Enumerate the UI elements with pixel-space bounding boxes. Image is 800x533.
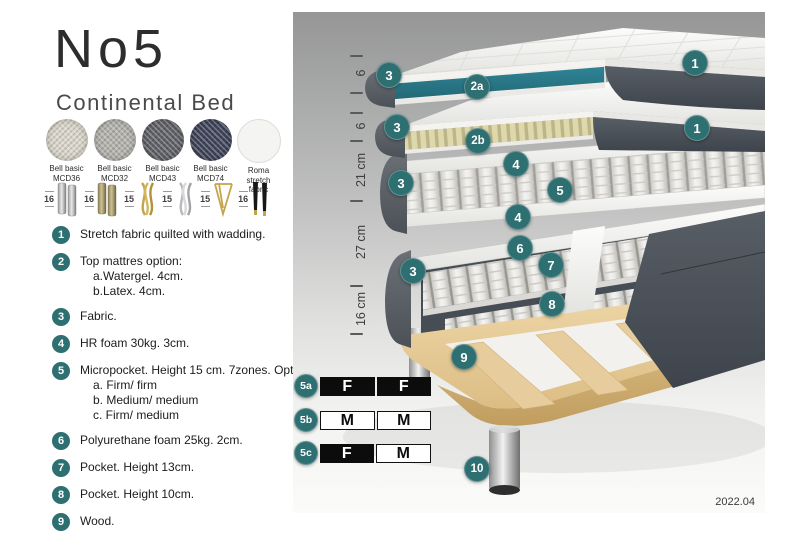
legend-list: 1Stretch fabric quilted with wadding. 2T… — [52, 226, 290, 533]
firmness-cell: M — [376, 444, 432, 463]
hairpin-gold-leg-icon — [211, 180, 235, 218]
firmness-cell: F — [377, 377, 432, 396]
callout-9[interactable]: 9 — [451, 344, 477, 370]
legend-item: 5Micropocket. Height 15 cm. 7zones. Opti… — [52, 362, 290, 423]
page-subtitle: Continental Bed — [56, 90, 235, 116]
callout-4[interactable]: 4 — [503, 151, 529, 177]
firmness-cell: F — [320, 444, 374, 463]
fabric-swatch-circle[interactable] — [142, 119, 184, 161]
fabric-swatch-circle[interactable] — [94, 119, 136, 161]
callout-3[interactable]: 3 — [388, 170, 414, 196]
bed-diagram-panel: 6 6 21 cm 27 cm 16 cm 1 3 2a 3 2b 1 4 5 … — [293, 12, 765, 513]
leg-options: 16 16 15 15 15 16 — [44, 180, 271, 218]
dimension-label: 27 cm — [354, 212, 368, 272]
leg-option[interactable]: 15 — [124, 180, 159, 218]
legend-number-badge: 7 — [52, 459, 70, 477]
callout-1[interactable]: 1 — [684, 115, 710, 141]
callout-4[interactable]: 4 — [505, 204, 531, 230]
tapered-black-gold-leg-icon — [249, 180, 271, 218]
fabric-swatch-circle[interactable] — [237, 119, 281, 163]
page-title: No5 — [54, 18, 168, 80]
callout-5a[interactable]: 5a — [294, 374, 318, 398]
firmness-cell: M — [377, 411, 432, 430]
firmness-row-5c: F M — [320, 444, 431, 463]
callout-1[interactable]: 1 — [682, 50, 708, 76]
legend-number-badge: 2 — [52, 253, 70, 271]
legend-number-badge: 6 — [52, 432, 70, 450]
dimension-label: 6 — [354, 43, 368, 103]
leg-option[interactable]: 16 — [238, 180, 271, 218]
legend-item: 7Pocket. Height 13cm. — [52, 459, 290, 477]
version-stamp: 2022.04 — [715, 496, 755, 508]
leg-option[interactable]: 15 — [200, 180, 235, 218]
cylinder-brass-leg-icon — [95, 180, 121, 218]
legend-number-badge: 1 — [52, 226, 70, 244]
product-sheet: No5 Continental Bed Bell basicMCD36 Bell… — [0, 0, 800, 533]
ruler-tick — [350, 200, 363, 202]
legend-item: 1Stretch fabric quilted with wadding. — [52, 226, 290, 244]
dimension-label: 21 cm — [354, 140, 368, 200]
firmness-cell: F — [320, 377, 375, 396]
leg-option[interactable]: 16 — [84, 180, 121, 218]
callout-5b[interactable]: 5b — [294, 408, 318, 432]
twisted-gold-leg-icon — [135, 180, 159, 218]
leg-option[interactable]: 16 — [44, 180, 81, 218]
dimension-label: 16 cm — [354, 279, 368, 339]
legend-item: 6Polyurethane foam 25kg. 2cm. — [52, 432, 290, 450]
legend-number-badge: 9 — [52, 513, 70, 531]
callout-2a[interactable]: 2a — [464, 74, 490, 100]
legend-number-badge: 3 — [52, 308, 70, 326]
callout-5c[interactable]: 5c — [294, 441, 318, 465]
callout-3[interactable]: 3 — [400, 258, 426, 284]
leg-option[interactable]: 15 — [162, 180, 197, 218]
callout-7[interactable]: 7 — [538, 252, 564, 278]
fabric-swatch-circle[interactable] — [190, 119, 232, 161]
callout-2b[interactable]: 2b — [465, 128, 491, 154]
firmness-row-5a: F F — [320, 377, 431, 396]
legend-number-badge: 4 — [52, 335, 70, 353]
fabric-swatch-circle[interactable] — [46, 119, 88, 161]
legend-number-badge: 8 — [52, 486, 70, 504]
twisted-silver-leg-icon — [173, 180, 197, 218]
callout-5[interactable]: 5 — [547, 177, 573, 203]
callout-10[interactable]: 10 — [464, 456, 490, 482]
callout-3[interactable]: 3 — [384, 114, 410, 140]
callout-8[interactable]: 8 — [539, 291, 565, 317]
legend-item: 4HR foam 30kg. 3cm. — [52, 335, 290, 353]
legend-item: 9Wood. — [52, 513, 290, 531]
cylinder-silver-leg-icon — [55, 180, 81, 218]
legend-item: 3Fabric. — [52, 308, 290, 326]
legend-number-badge: 5 — [52, 362, 70, 380]
callout-6[interactable]: 6 — [507, 235, 533, 261]
firmness-row-5b: M M — [320, 411, 431, 430]
legend-item: 2Top mattres option:a.Watergel. 4cm.b.La… — [52, 253, 290, 299]
callout-3[interactable]: 3 — [376, 62, 402, 88]
legend-item: 8Pocket. Height 10cm. — [52, 486, 290, 504]
firmness-cell: M — [320, 411, 375, 430]
